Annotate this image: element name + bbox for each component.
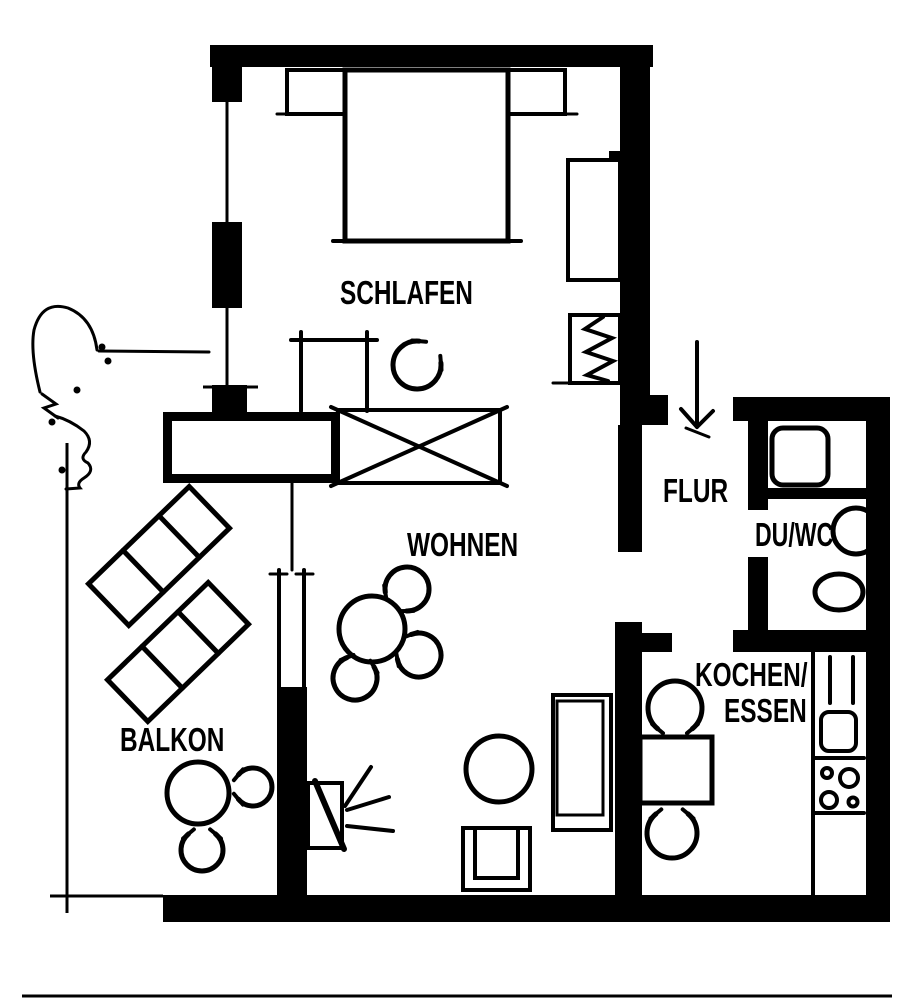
arrow-head [697,411,713,427]
entrance-arrow-icon [681,342,713,437]
wall-kitchen-stub [642,633,672,652]
tv-ray [347,797,389,810]
stool-square [463,828,530,890]
wall-flur-left [618,425,642,552]
bed-outline [345,70,508,241]
tree-dot [99,344,105,350]
chair-balcony-bottom-icon [181,829,223,871]
chair-arc [393,341,441,389]
balcony-table [167,762,229,824]
floorplan-canvas: SCHLAFEN WOHNEN BALKON FLUR DU/WC KOCHEN… [0,0,914,1000]
tree-lower-curves [55,416,91,489]
room-label-essen: ESSEN [724,694,807,730]
wall-kitchen-left [615,622,642,897]
wall-shower-divider [765,488,866,499]
chair-arc [181,834,223,871]
stove-burner-icon [822,768,832,778]
wall-bathroom-bottom [733,630,888,652]
chair-bedroom-icon [393,341,442,390]
arrow-head [681,409,697,427]
wall-balcony-door-column [277,687,307,897]
couch [553,695,611,830]
tree-scribble [42,394,58,418]
chair-arc [647,814,697,858]
wall-right-outer [866,397,890,922]
chair-hook [341,655,354,660]
toilet-icon [815,574,863,610]
tree-dot [49,419,55,425]
tree-dot [105,358,111,364]
desk [291,332,377,411]
wardrobe-x-icon [331,407,507,486]
chair-hook [440,356,441,370]
bed [333,70,521,241]
cabinet-zigzag [553,315,620,383]
room-label-schlafen: SCHLAFEN [340,276,473,312]
nightstand-left [287,70,345,114]
chair-dining-bottom-icon [333,655,377,700]
sink-icon [821,712,856,751]
stove-burner-icon [840,769,858,787]
room-label-kochen: KOCHEN/ [695,658,808,694]
chair-arc [648,681,702,729]
chair-hook [396,652,399,666]
kitchen-table [640,737,712,803]
chair-balcony-right-icon [234,768,272,806]
stool-inner [475,828,518,878]
wall-bottom [163,895,888,922]
room-label-flur: FLUR [663,474,728,510]
stove-burner-icon [849,798,858,807]
window-pier-2 [212,385,247,412]
sideboard-thick [168,417,336,479]
armchair-round [466,736,532,802]
tree-dot [59,467,65,473]
wall-entrance-stub [650,395,668,425]
chair-kitchen-top-icon [648,681,702,733]
tv-ray [347,826,393,831]
room-label-balkon: BALKON [120,723,224,759]
wall-top-left-pillar [212,45,242,102]
room-label-du-wc: DU/WC [755,517,833,554]
tv-icon [308,767,393,849]
floorplan-page: SCHLAFEN WOHNEN BALKON FLUR DU/WC KOCHEN… [0,0,914,1000]
wall-bedroom-right [620,45,650,425]
kitchen-counter [813,652,864,895]
wardrobe-notch [609,151,621,162]
tree-dot [74,387,80,393]
room-label-wohnen: WOHNEN [407,528,518,564]
chair-kitchen-bottom-icon [647,809,697,858]
chair-hook [384,586,386,600]
nightstand-right [508,70,565,114]
tv-ray [345,767,371,806]
couch-inner [557,701,603,815]
zigzag-icon [585,317,613,381]
shower-tray-icon [772,428,828,485]
wall-top [210,45,653,67]
chair-arc [238,768,272,806]
balcony-door [270,483,313,688]
wardrobe-tall [568,160,620,280]
tree-canopy [33,306,97,392]
stove-burner-icon [821,792,837,808]
tree-leader-line [99,351,209,352]
wall-bathroom-top [733,397,888,421]
chair-hook [412,341,426,342]
arrow-sketch-tick [686,428,709,437]
